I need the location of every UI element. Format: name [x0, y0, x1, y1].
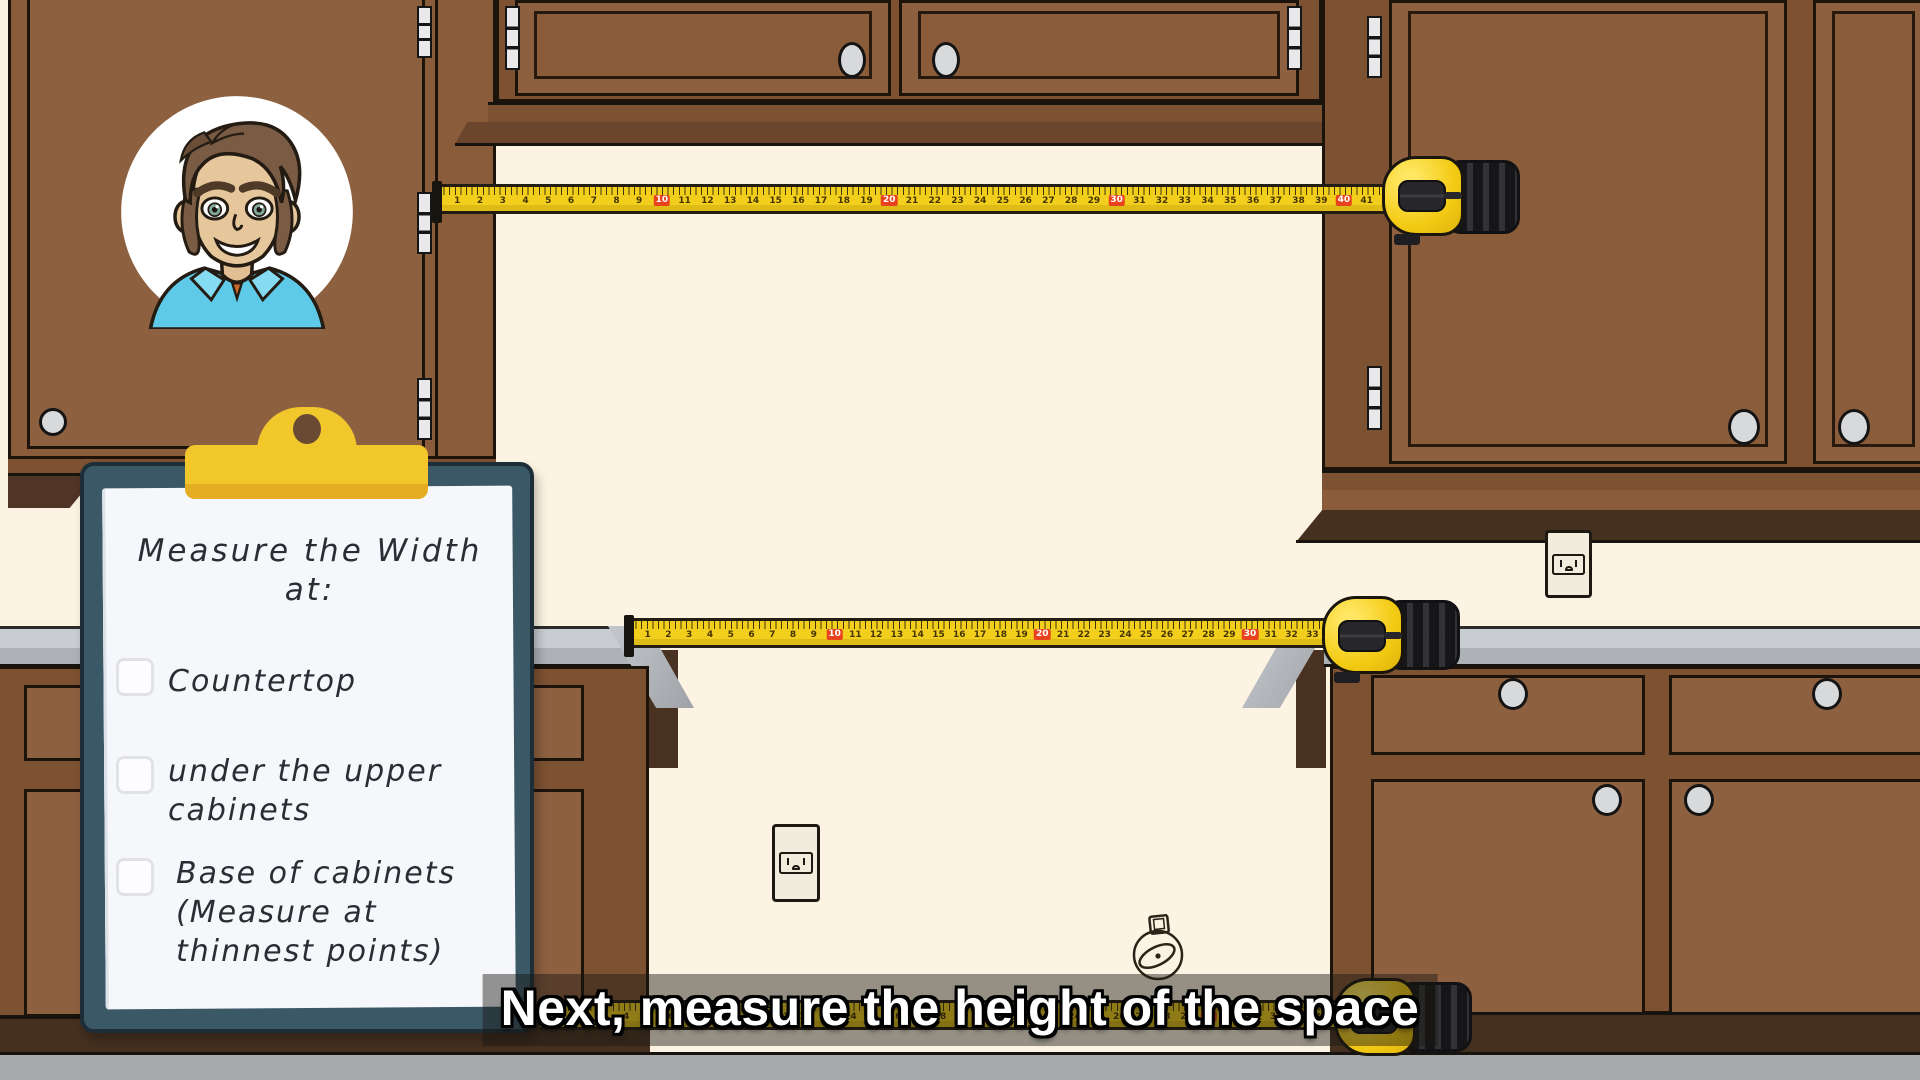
tape-number: 20	[881, 195, 898, 206]
tape-number: 18	[995, 631, 1008, 640]
cabinet-door	[1669, 779, 1920, 1017]
tape-hook-icon	[432, 181, 442, 223]
hinge-icon	[1287, 6, 1302, 70]
tape-number: 7	[769, 631, 775, 640]
tape-number: 19	[1015, 631, 1028, 640]
checklist-title: Measure the Width at:	[112, 532, 508, 610]
tape-number: 40	[1336, 195, 1353, 206]
tape-number: 10	[654, 195, 671, 206]
tape-number: 2	[477, 197, 483, 206]
hinge-icon	[417, 6, 432, 58]
tape-number: 25	[997, 197, 1010, 206]
tape-number: 30	[1242, 629, 1259, 640]
tape-number: 34	[1201, 197, 1214, 206]
tape-number: 31	[1265, 631, 1278, 640]
tape-number: 25	[1140, 631, 1153, 640]
hinge-icon	[417, 192, 432, 254]
clipboard-clip-icon	[185, 445, 428, 499]
tape-number: 35	[1224, 197, 1237, 206]
tape-number: 22	[1078, 631, 1091, 640]
hinge-icon	[505, 6, 520, 70]
tape-number: 32	[1285, 631, 1298, 640]
tape-number: 23	[1098, 631, 1111, 640]
tape-measure-case	[1382, 156, 1532, 246]
upper-center-crown	[455, 122, 1337, 144]
tape-number: 9	[636, 197, 642, 206]
cabinet-door	[515, 0, 891, 96]
tape-belt-clip	[1394, 234, 1420, 245]
checklist-item-label: Countertop	[168, 662, 504, 701]
kitchen-measuring-scene: 1234567891011121314151617181920212223242…	[0, 0, 1920, 1080]
tape-number: 5	[545, 197, 551, 206]
tape-number: 29	[1088, 197, 1101, 206]
tape-ticks	[630, 621, 1330, 629]
cabinet-door	[899, 0, 1299, 96]
trim-edge-line	[1296, 540, 1920, 543]
tape-number: 10	[826, 629, 843, 640]
door-panel	[534, 11, 872, 79]
tape-number: 11	[678, 197, 691, 206]
tape-number: 6	[748, 631, 754, 640]
tape-ticks	[438, 187, 1386, 195]
tape-number: 37	[1269, 197, 1282, 206]
upper-right-rail	[1322, 470, 1920, 490]
door-knob	[39, 408, 67, 436]
checkbox-countertop[interactable]	[116, 658, 154, 696]
tape-number: 18	[838, 197, 851, 206]
tape-number: 9	[811, 631, 817, 640]
tape-number: 7	[591, 197, 597, 206]
door-panel	[1832, 11, 1915, 447]
upper-center-rail	[488, 102, 1330, 122]
tape-number: 2	[665, 631, 671, 640]
door-knob	[1728, 409, 1760, 445]
checkbox-under-upper-cabinets[interactable]	[116, 756, 154, 794]
tape-number: 13	[891, 631, 904, 640]
door-knob	[1592, 784, 1622, 816]
tape-number: 26	[1161, 631, 1174, 640]
drawer-front	[1669, 675, 1920, 755]
tape-number: 8	[613, 197, 619, 206]
tape-number: 15	[769, 197, 782, 206]
tape-case-grip	[1338, 620, 1386, 652]
tape-case-crank	[1384, 632, 1402, 639]
tape-number: 17	[974, 631, 987, 640]
upper-right-trim	[1296, 510, 1920, 542]
checklist-item-label: under the upper cabinets	[168, 752, 504, 830]
tape-number: 30	[1108, 195, 1125, 206]
door-knob	[932, 42, 960, 78]
tape-belt-clip	[1334, 672, 1360, 683]
tape-number: 22	[928, 197, 941, 206]
tape-number: 16	[792, 197, 805, 206]
tape-number: 1	[454, 197, 460, 206]
tape-number: 8	[790, 631, 796, 640]
tape-number: 26	[1019, 197, 1032, 206]
tape-number: 11	[849, 631, 862, 640]
tape-case-grip	[1398, 180, 1446, 212]
tape-number: 13	[724, 197, 737, 206]
tape-number: 29	[1223, 631, 1236, 640]
tape-number: 15	[932, 631, 945, 640]
tape-number: 27	[1181, 631, 1194, 640]
tape-number: 27	[1042, 197, 1055, 206]
outlet-socket	[779, 852, 813, 874]
upper-right-band	[1322, 490, 1920, 510]
power-outlet-icon	[1545, 530, 1592, 598]
wall-light-fixture-icon	[1130, 914, 1188, 982]
door-knob	[1684, 784, 1714, 816]
tape-number: 5	[728, 631, 734, 640]
tape-number: 1	[645, 631, 651, 640]
tape-number: 36	[1247, 197, 1260, 206]
tape-number: 24	[974, 197, 987, 206]
tape-number: 12	[701, 197, 714, 206]
outlet-socket	[1552, 554, 1585, 575]
hinge-icon	[1367, 16, 1382, 78]
door-knob	[1838, 409, 1870, 445]
tape-number: 38	[1292, 197, 1305, 206]
floor	[0, 1052, 1920, 1080]
tape-number: 6	[568, 197, 574, 206]
tape-number: 4	[522, 197, 528, 206]
tape-number: 4	[707, 631, 713, 640]
checkbox-base-of-cabinets[interactable]	[116, 858, 154, 896]
drawer-knob	[1812, 678, 1842, 710]
tape-number: 33	[1306, 631, 1319, 640]
tape-number: 24	[1119, 631, 1132, 640]
presenter-avatar	[120, 95, 354, 329]
hinge-icon	[417, 378, 432, 440]
tape-measure-middle: 1234567891011121314151617181920212223242…	[630, 618, 1330, 648]
tape-number: 19	[860, 197, 873, 206]
tape-number: 16	[953, 631, 966, 640]
base-cabinet-right	[1330, 666, 1920, 1014]
tape-number: 32	[1156, 197, 1169, 206]
tape-number: 21	[906, 197, 919, 206]
drawer-knob	[1498, 678, 1528, 710]
cabinet-stile-line	[435, 0, 438, 456]
door-panel	[918, 11, 1280, 79]
subtitle-caption: Next, measure the height of the space	[483, 974, 1438, 1046]
tape-number: 33	[1179, 197, 1192, 206]
tape-number: 3	[686, 631, 692, 640]
tape-number: 21	[1057, 631, 1070, 640]
tape-measure-case	[1322, 596, 1472, 686]
tape-number: 23	[951, 197, 964, 206]
tape-measure-top: 1234567891011121314151617181920212223242…	[438, 184, 1386, 214]
tape-number: 20	[1034, 629, 1051, 640]
tape-hook-icon	[624, 615, 634, 657]
tape-number: 31	[1133, 197, 1146, 206]
tape-case-crank	[1444, 192, 1462, 199]
tape-number: 17	[815, 197, 828, 206]
hinge-icon	[1367, 366, 1382, 430]
power-outlet-icon	[772, 824, 820, 902]
clipboard-clip-hole	[293, 414, 321, 444]
tape-number: 41	[1360, 197, 1373, 206]
crown-edge-line	[455, 143, 1337, 146]
tape-number: 3	[500, 197, 506, 206]
checklist-item-label: Base of cabinets (Measure at thinnest po…	[176, 854, 512, 971]
upper-cabinet-center	[496, 0, 1322, 102]
door-knob	[838, 42, 866, 78]
tape-number: 12	[870, 631, 883, 640]
cabinet-door	[1813, 0, 1920, 464]
tape-number: 39	[1315, 197, 1328, 206]
tape-number: 28	[1202, 631, 1215, 640]
tape-number: 14	[911, 631, 924, 640]
tape-number: 28	[1065, 197, 1078, 206]
tape-number: 14	[747, 197, 760, 206]
